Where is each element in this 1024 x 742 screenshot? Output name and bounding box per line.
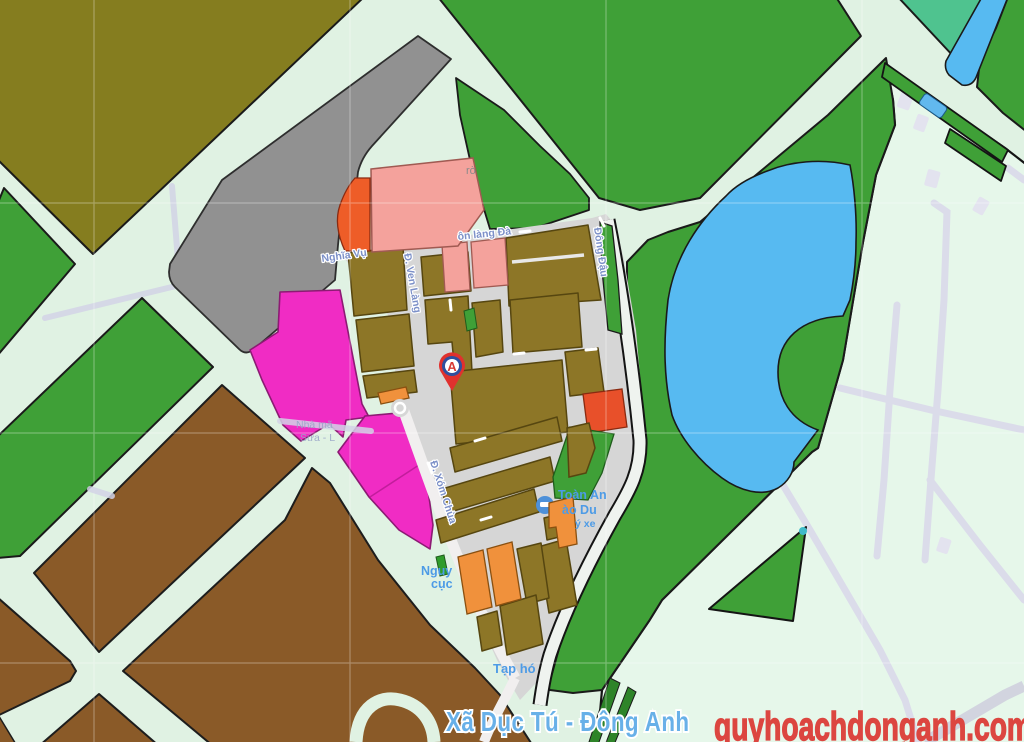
svg-text:Xã Dục Tú - Đông Anh: Xã Dục Tú - Đông Anh <box>446 707 690 738</box>
svg-text:Toàn An: Toàn An <box>558 488 607 502</box>
svg-text:Nguy: Nguy <box>421 564 452 578</box>
svg-text:Sứa - L: Sứa - L <box>300 432 335 444</box>
svg-text:A: A <box>447 359 457 374</box>
svg-text:cục: cục <box>431 577 453 591</box>
svg-text:ào Du: ào Du <box>562 503 597 517</box>
svg-text:ý xe: ý xe <box>575 518 596 530</box>
svg-text:Tạp hó: Tạp hó <box>493 661 536 676</box>
svg-text:rò: rò <box>466 165 476 177</box>
svg-text:Nhà mã: Nhà mã <box>296 419 333 431</box>
svg-text:quyhoachdonganh.com: quyhoachdonganh.com <box>714 705 1024 742</box>
